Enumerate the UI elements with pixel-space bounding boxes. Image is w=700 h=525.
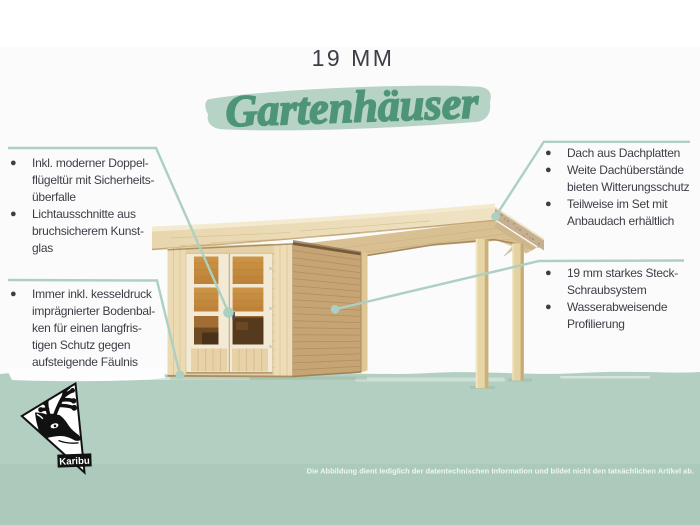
svg-text:Die Abbildung dient lediglich: Die Abbildung dient lediglich der datent… <box>307 467 694 476</box>
svg-text:Gartenhäuser: Gartenhäuser <box>225 78 480 137</box>
svg-text:Karibu: Karibu <box>59 456 90 468</box>
